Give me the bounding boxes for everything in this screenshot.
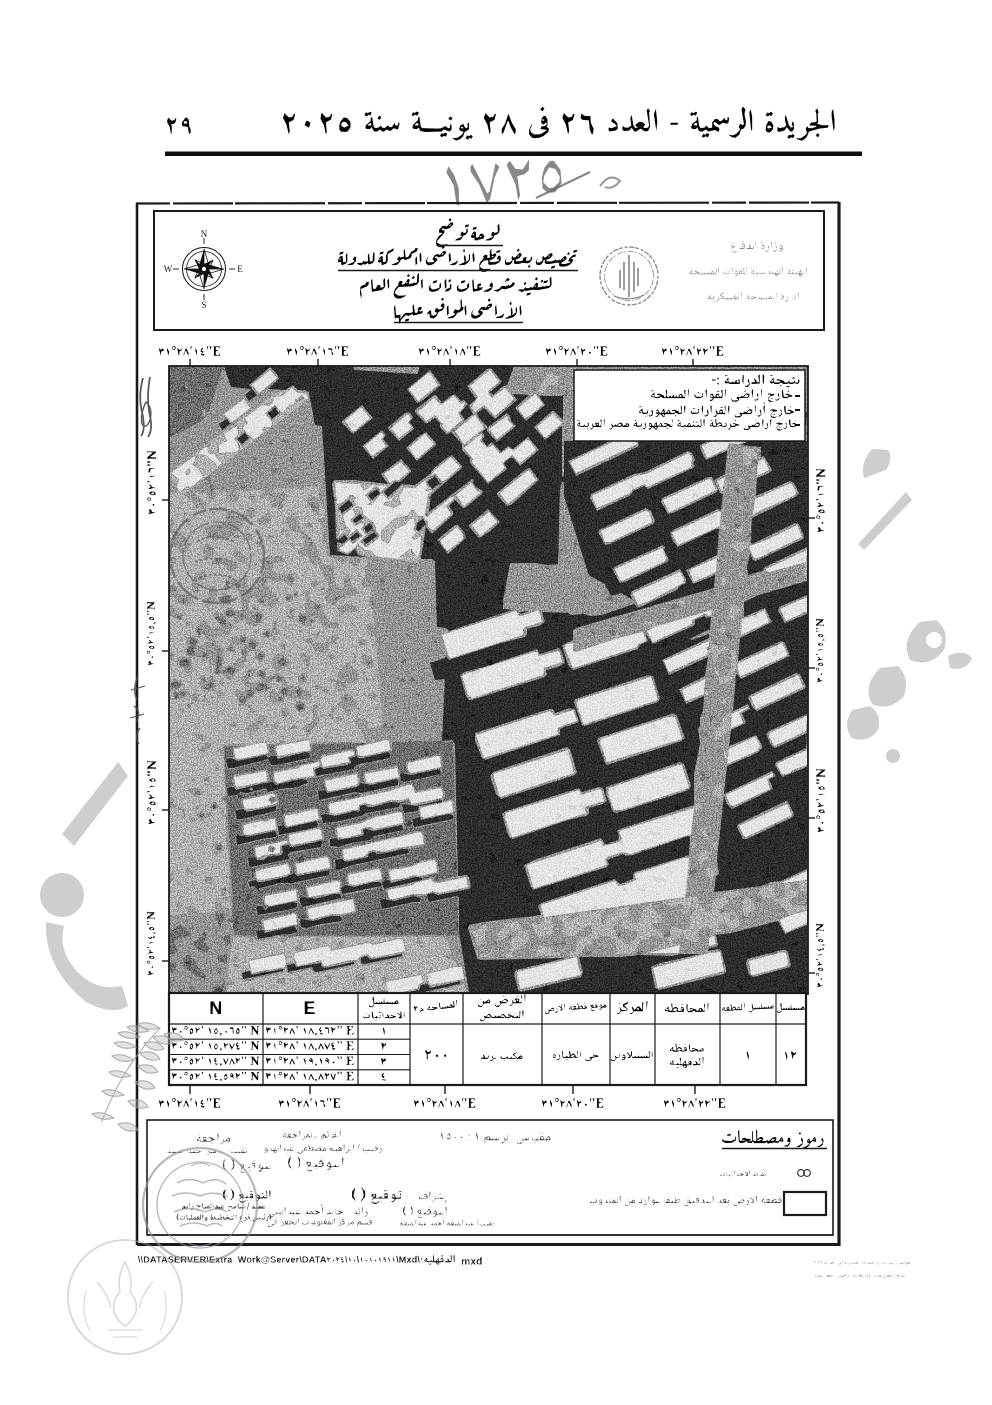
svg-text:W: W <box>164 264 173 274</box>
svg-text:S: S <box>201 300 206 310</box>
svg-text:N: N <box>201 229 208 239</box>
svg-text:E: E <box>237 264 243 274</box>
